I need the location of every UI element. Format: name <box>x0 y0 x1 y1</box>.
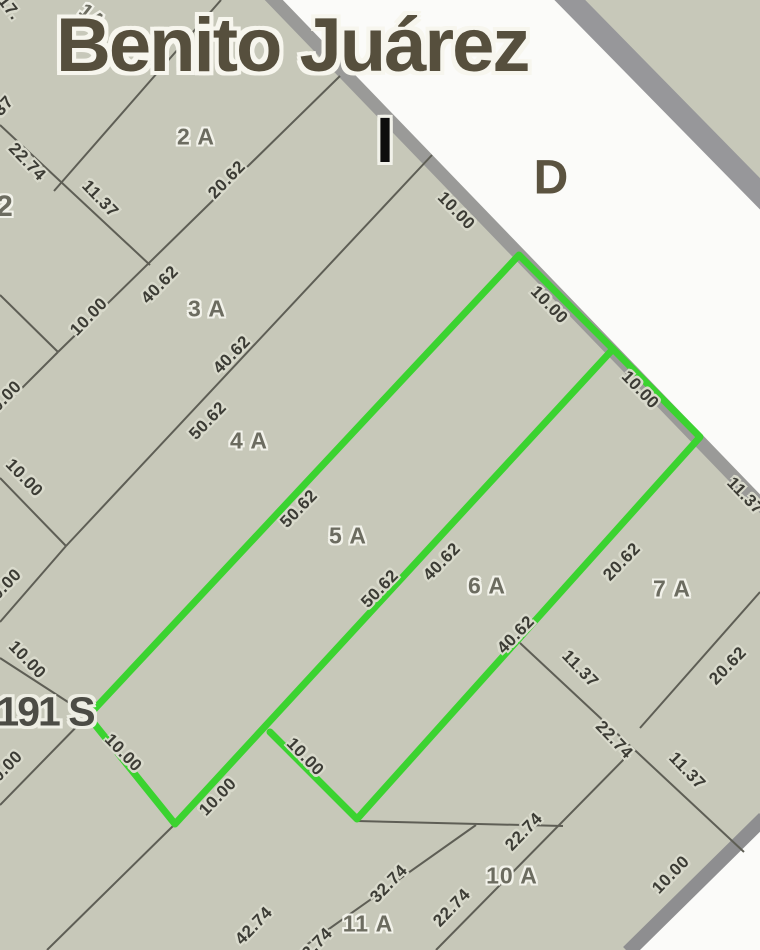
corner-marker-191s: 191 S <box>0 689 94 736</box>
parcel-label: 7 A <box>653 576 691 603</box>
block-letter-i: I <box>376 103 394 177</box>
street-name-title: Benito Juárez <box>56 2 528 89</box>
parcel-label: 4 A <box>230 428 268 455</box>
street-side-letter-d: D <box>534 151 569 206</box>
parcel-label: 10 A <box>486 863 538 890</box>
parcel-label: 2 <box>0 190 14 224</box>
parcel-label: 6 A <box>468 573 506 600</box>
parcel-label: 2 A <box>177 124 215 151</box>
parcel-label: 5 A <box>329 523 367 550</box>
cadastral-map: 17.3722.7411.3720.6240.6210.0040.6250.62… <box>0 0 760 950</box>
parcel-label: 11 A <box>343 911 393 938</box>
parcel-label: 3 A <box>188 296 226 323</box>
